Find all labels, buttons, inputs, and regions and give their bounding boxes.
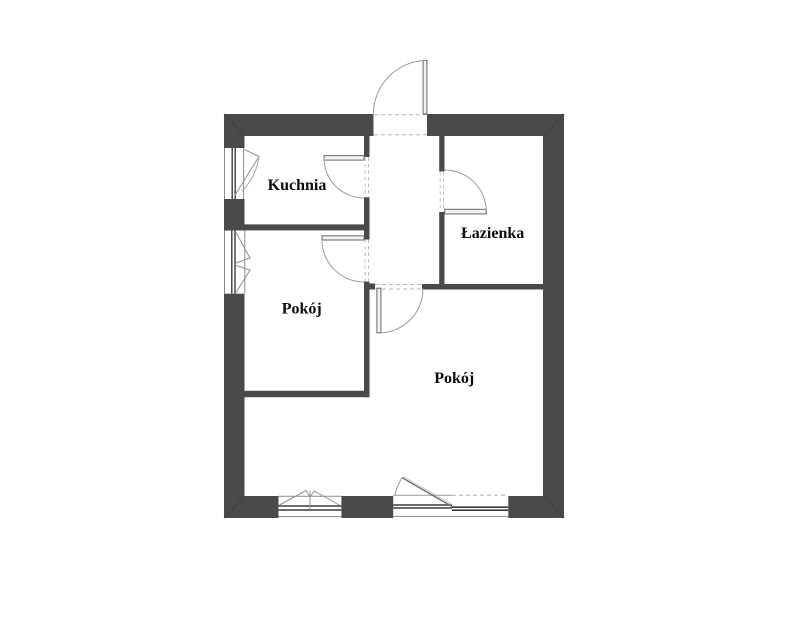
svg-text:Łazienka: Łazienka	[461, 225, 524, 242]
svg-text:Pokój: Pokój	[434, 370, 474, 387]
svg-text:Pokój: Pokój	[282, 301, 322, 318]
svg-text:Kuchnia: Kuchnia	[268, 177, 327, 194]
